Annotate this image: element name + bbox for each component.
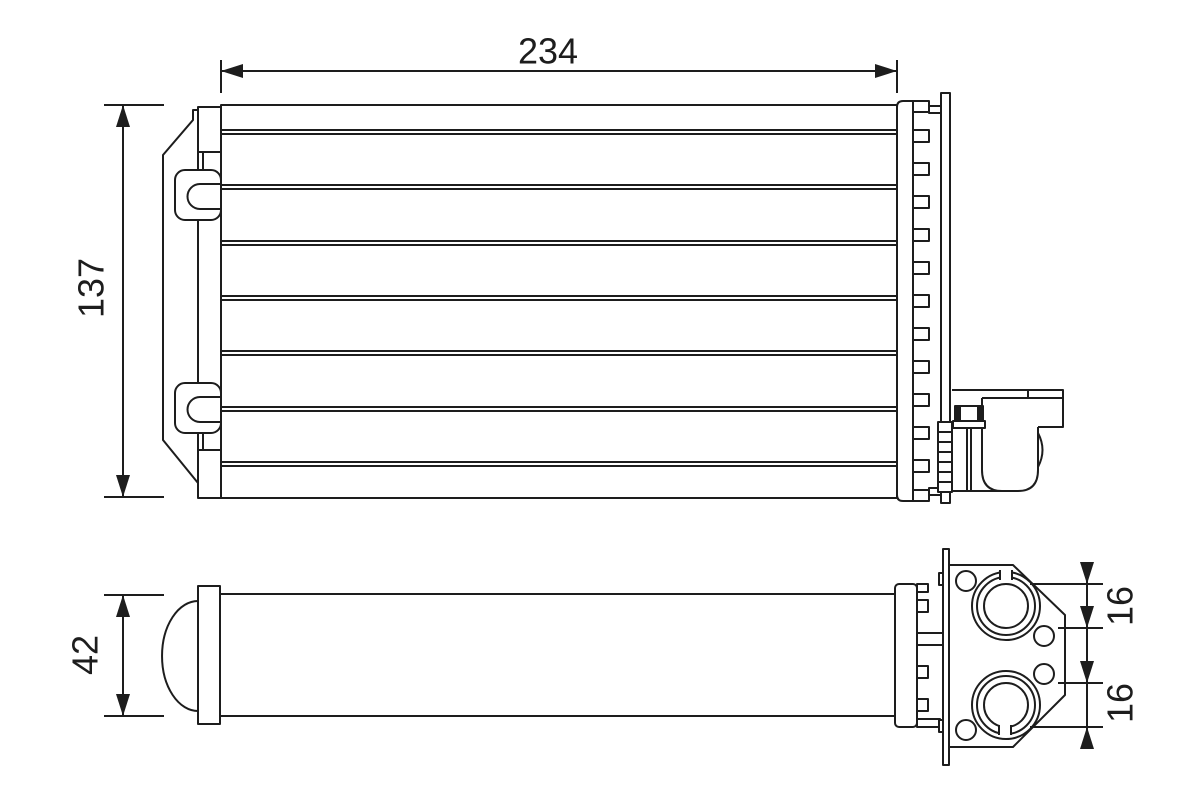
arrowhead-right	[875, 64, 897, 78]
core-body	[221, 105, 897, 498]
dim-core-width-label: 234	[518, 31, 578, 72]
pipe-clamp-screw-left	[955, 406, 961, 422]
plate-connector-top	[929, 106, 941, 113]
comb-tooth-4	[917, 699, 928, 711]
comb-tab-top	[917, 584, 928, 592]
comb-tooth-2-extended	[917, 633, 943, 645]
arrowhead-3	[1080, 661, 1094, 683]
dim-core-height: 137	[71, 105, 164, 497]
arrowhead-left	[221, 64, 243, 78]
technical-drawing: 234 137 42 16 16	[0, 0, 1200, 800]
left-side-plate	[198, 107, 221, 498]
flange-hole-top-left	[956, 571, 976, 591]
dim-core-depth-label: 42	[65, 635, 106, 675]
arrowhead-bottom	[116, 694, 130, 716]
dim-core-depth: 42	[65, 595, 164, 716]
body-profile-lines	[220, 594, 895, 716]
side-plate-profile	[198, 586, 220, 724]
mounting-bracket-upper	[175, 170, 221, 220]
fitting-stem	[952, 428, 1002, 491]
dim-core-height-label: 137	[71, 258, 112, 318]
arrowhead-1	[1080, 562, 1094, 584]
mounting-bracket-lower	[175, 383, 221, 433]
header-block	[895, 584, 917, 727]
plate-rib-ladder	[938, 422, 952, 492]
comb-tooth-1	[917, 600, 928, 612]
right-tank-tab-bottom	[913, 490, 929, 501]
flange-hole-mid-lower	[1034, 664, 1054, 684]
port-lower-notch	[999, 725, 1011, 736]
extension-lines	[104, 105, 164, 497]
arrowhead-4	[1080, 727, 1094, 749]
arrowhead-bottom	[116, 475, 130, 497]
flange-hole-mid-upper	[1034, 626, 1054, 646]
outlet-fitting	[938, 390, 1063, 492]
comb-tab-bottom	[917, 719, 940, 727]
pipe-clamp-base	[953, 421, 985, 428]
pipe-clamp-screw-right	[977, 406, 983, 422]
arrowhead-2	[1080, 606, 1094, 628]
side-view	[162, 549, 1065, 765]
dim-core-width: 234	[221, 31, 897, 93]
extension-lines	[104, 595, 164, 716]
port-lower	[972, 671, 1040, 739]
gasket-comb	[913, 112, 929, 489]
comb-tooth-3	[917, 666, 928, 678]
dim-port-upper-label: 16	[1100, 586, 1141, 626]
fitting-pipe-body	[982, 398, 1038, 491]
top-view	[163, 93, 1063, 503]
dim-port-lower-label: 16	[1100, 683, 1141, 723]
right-tank-tab-top	[913, 101, 929, 112]
right-tank	[897, 101, 913, 501]
flange-hole-bottom-left	[956, 720, 976, 740]
arrowhead-top	[116, 595, 130, 617]
port-upper-notch	[1000, 569, 1012, 580]
tank-dome	[162, 601, 198, 711]
arrowhead-top	[116, 105, 130, 127]
drawing-canvas: 234 137 42 16 16	[0, 0, 1200, 800]
